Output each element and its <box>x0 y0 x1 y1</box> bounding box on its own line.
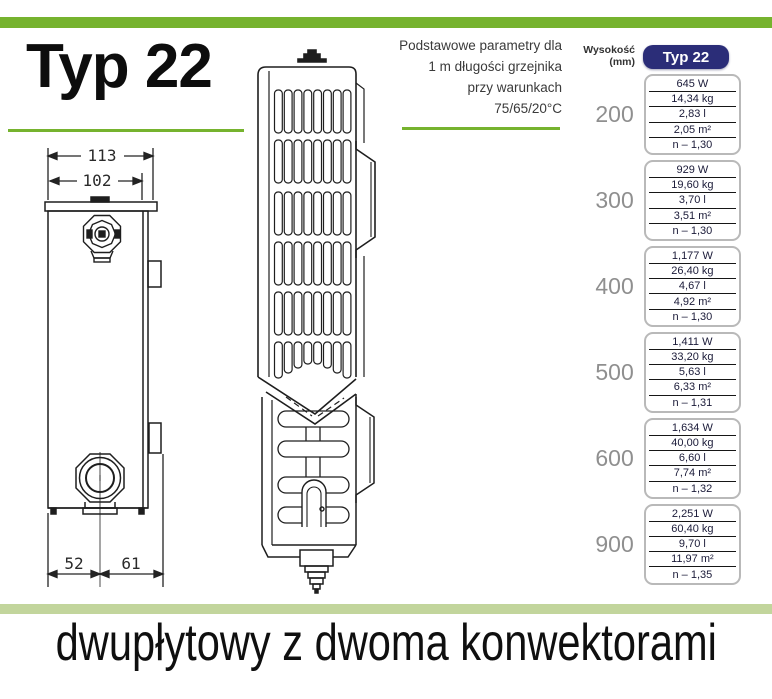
spec-cell: 4,67 l <box>649 279 736 294</box>
grille-slot <box>324 140 332 183</box>
dim-102-label: 102 <box>83 171 112 190</box>
grille-slot <box>314 90 322 133</box>
spec-group: 600 1,634 W40,00 kg6,60 l7,74 m²n – 1,32 <box>573 418 741 499</box>
height-label: 200 <box>573 101 644 128</box>
grille-slot <box>294 292 302 335</box>
spec-cell: 26,40 kg <box>649 264 736 279</box>
dim-113-label: 113 <box>88 146 117 165</box>
spec-cell: 40,00 kg <box>649 436 736 451</box>
value-cells: 645 W14,34 kg2,83 l2,05 m²n – 1,30 <box>644 74 741 155</box>
catalog-page: Typ 22 Podstawowe parametry dla 1 m dług… <box>0 0 772 699</box>
wall-bracket-lower <box>356 397 374 503</box>
value-cells: 929 W19,60 kg3,70 l3,51 m²n – 1,30 <box>644 160 741 241</box>
grille-slot <box>275 242 283 285</box>
spec-cell: 6,33 m² <box>649 380 736 395</box>
spec-table-header: Wysokość (mm) Typ 22 <box>573 45 741 69</box>
spec-group: 400 1,177 W26,40 kg4,67 l4,92 m²n – 1,30 <box>573 246 741 327</box>
top-accent-bar <box>0 17 772 28</box>
grille-slot <box>343 342 351 378</box>
height-label: 600 <box>573 445 644 472</box>
grille-slot <box>304 342 312 364</box>
grille-slot <box>333 342 341 373</box>
wall-bracket-upper <box>356 141 375 258</box>
grille-slot <box>343 192 351 235</box>
spec-cell: 6,60 l <box>649 451 736 466</box>
spec-cell: 1,634 W <box>649 421 736 436</box>
front-body-outline <box>258 50 375 377</box>
grille-slot <box>333 140 341 183</box>
spec-cell: n – 1,35 <box>649 567 736 581</box>
grille-slot <box>294 192 302 235</box>
grille-slot <box>284 242 292 285</box>
spec-cell: n – 1,30 <box>649 224 736 238</box>
grille-slot <box>343 90 351 133</box>
spec-cell: 4,92 m² <box>649 294 736 309</box>
spec-cell: 1,411 W <box>649 335 736 350</box>
air-vent-cap <box>298 50 326 62</box>
grille-slot <box>284 292 292 335</box>
spec-group: 500 1,411 W33,20 kg5,63 l6,33 m²n – 1,31 <box>573 332 741 413</box>
grille-slot <box>275 140 283 183</box>
height-label: 500 <box>573 359 644 386</box>
grille-slot <box>314 242 322 285</box>
grille-slot <box>304 242 312 285</box>
spec-cell: 2,05 m² <box>649 123 736 138</box>
grille-slot <box>284 90 292 133</box>
spec-cell: 19,60 kg <box>649 178 736 193</box>
grille-slot <box>304 292 312 335</box>
grille-slot <box>333 242 341 285</box>
grille-slot <box>284 342 292 373</box>
spec-table: Wysokość (mm) Typ 22 200 645 W14,34 kg2,… <box>573 45 741 590</box>
dim-52-label: 52 <box>64 554 83 573</box>
height-label: 400 <box>573 273 644 300</box>
spec-group: 900 2,251 W60,40 kg9,70 l11,97 m²n – 1,3… <box>573 504 741 585</box>
grille-slot <box>284 192 292 235</box>
grille-slot <box>275 292 283 335</box>
grille-slot <box>314 342 322 364</box>
page-title: Typ 22 <box>26 34 212 99</box>
dimension-labels: 113 102 52 61 <box>64 146 140 573</box>
footer-caption-text: dwupłytowy z dwoma konwektorami <box>55 613 716 673</box>
spec-table-groups: 200 645 W14,34 kg2,83 l2,05 m²n – 1,30 3… <box>573 74 741 585</box>
grille-slot <box>275 192 283 235</box>
spec-cell: 1,177 W <box>649 249 736 264</box>
grille-slot <box>284 140 292 183</box>
bottom-connection <box>262 545 356 593</box>
value-cells: 2,251 W60,40 kg9,70 l11,97 m²n – 1,35 <box>644 504 741 585</box>
grille-slot <box>343 242 351 285</box>
spec-cell: 929 W <box>649 163 736 178</box>
spec-cell: n – 1,32 <box>649 482 736 496</box>
spec-cell: n – 1,30 <box>649 138 736 152</box>
grille-slot <box>333 292 341 335</box>
spec-group: 200 645 W14,34 kg2,83 l2,05 m²n – 1,30 <box>573 74 741 155</box>
thermostat-valve-top <box>84 216 121 263</box>
grille-slot <box>275 90 283 133</box>
grille-slot <box>294 140 302 183</box>
spec-cell: n – 1,30 <box>649 310 736 324</box>
footer-caption: dwupłytowy z dwoma konwektorami <box>0 613 772 673</box>
grille-slot <box>324 90 332 133</box>
radiator-front-view-drawing <box>252 45 437 605</box>
grille-slot <box>304 192 312 235</box>
height-label: 900 <box>573 531 644 558</box>
internal-pipe <box>302 480 326 527</box>
cutaway-break <box>258 377 356 424</box>
grille-slot <box>324 292 332 335</box>
spec-cell: n – 1,31 <box>649 396 736 410</box>
radiator-side-body <box>45 197 161 514</box>
grille-slot <box>333 192 341 235</box>
spec-cell: 5,63 l <box>649 365 736 380</box>
grille-slot <box>324 342 332 368</box>
grille-slot <box>294 90 302 133</box>
spec-cell: 14,34 kg <box>649 92 736 107</box>
value-cells: 1,177 W26,40 kg4,67 l4,92 m²n – 1,30 <box>644 246 741 327</box>
grille-slot <box>275 342 283 378</box>
radiator-side-view-drawing: 113 102 52 61 <box>25 140 240 605</box>
grille-slot <box>324 242 332 285</box>
grille-slot <box>343 140 351 183</box>
height-label: 300 <box>573 187 644 214</box>
spec-cell: 645 W <box>649 77 736 92</box>
grille-slot <box>314 292 322 335</box>
spec-cell: 7,74 m² <box>649 466 736 481</box>
type-column-header: Typ 22 <box>643 45 729 69</box>
spec-cell: 2,83 l <box>649 107 736 122</box>
value-cells: 1,411 W33,20 kg5,63 l6,33 m²n – 1,31 <box>644 332 741 413</box>
dimension-lines <box>48 148 163 587</box>
grille-slot <box>314 140 322 183</box>
dim-61-label: 61 <box>121 554 140 573</box>
spec-cell: 9,70 l <box>649 537 736 552</box>
spec-cell: 60,40 kg <box>649 522 736 537</box>
spec-cell: 2,251 W <box>649 507 736 522</box>
grille-slot <box>314 192 322 235</box>
spec-cell: 3,51 m² <box>649 209 736 224</box>
height-column-label: Wysokość (mm) <box>573 45 639 68</box>
value-cells: 1,634 W40,00 kg6,60 l7,74 m²n – 1,32 <box>644 418 741 499</box>
spec-cell: 33,20 kg <box>649 350 736 365</box>
spec-cell: 3,70 l <box>649 193 736 208</box>
grille-slot <box>294 242 302 285</box>
grille-slot <box>333 90 341 133</box>
grille-slot <box>294 342 302 368</box>
spec-cell: 11,97 m² <box>649 552 736 567</box>
grille-slot <box>304 90 312 133</box>
convection-grille <box>275 90 351 378</box>
title-underline <box>8 129 244 132</box>
spec-group: 300 929 W19,60 kg3,70 l3,51 m²n – 1,30 <box>573 160 741 241</box>
grille-slot <box>304 140 312 183</box>
grille-slot <box>324 192 332 235</box>
grille-slot <box>343 292 351 335</box>
